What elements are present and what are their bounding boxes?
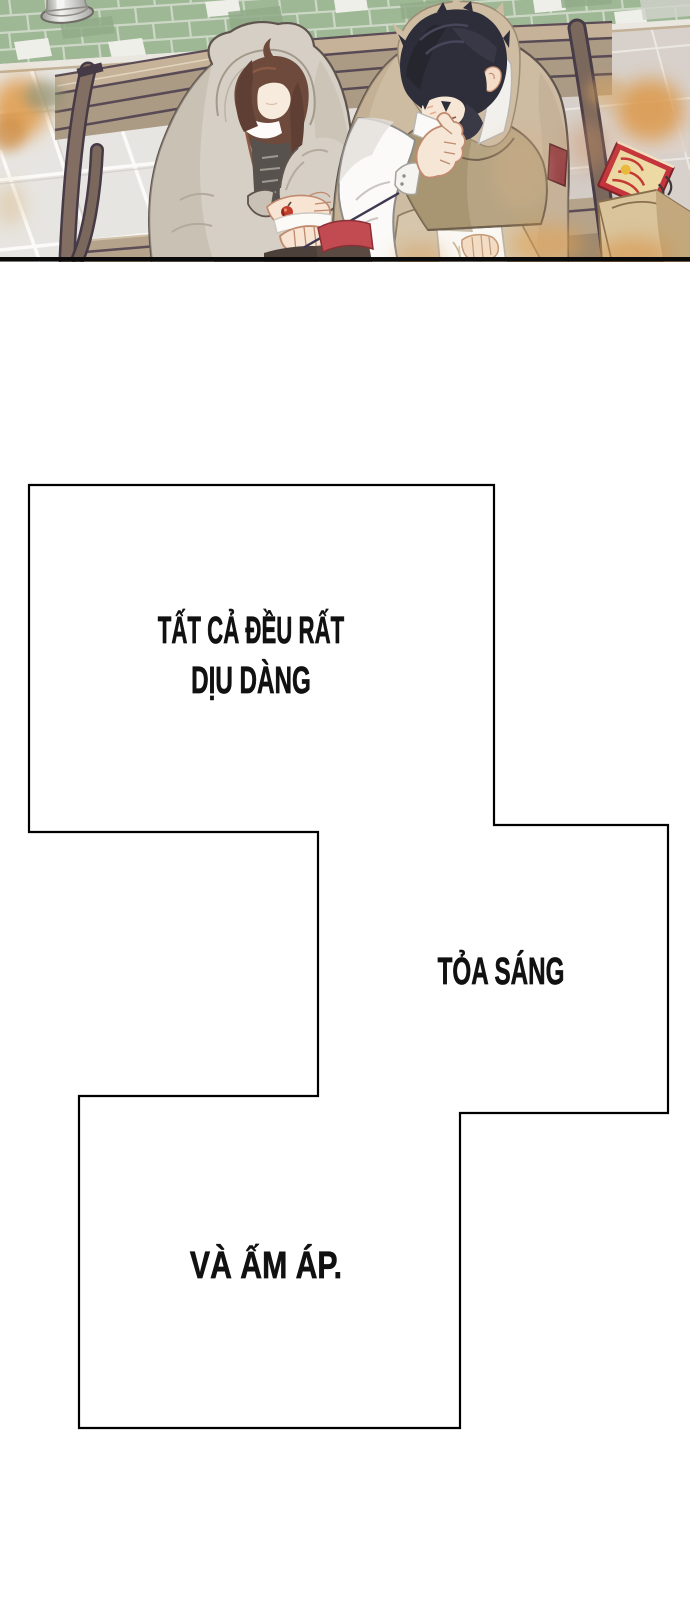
svg-text:VÀ ẤM ÁP.: VÀ ẤM ÁP. — [190, 1243, 342, 1287]
svg-text:TẤT CẢ ĐỀU RẤT: TẤT CẢ ĐỀU RẤT — [158, 609, 344, 652]
svg-text:DỊU DÀNG: DỊU DÀNG — [191, 658, 311, 701]
svg-text:TỎA SÁNG: TỎA SÁNG — [438, 949, 565, 992]
